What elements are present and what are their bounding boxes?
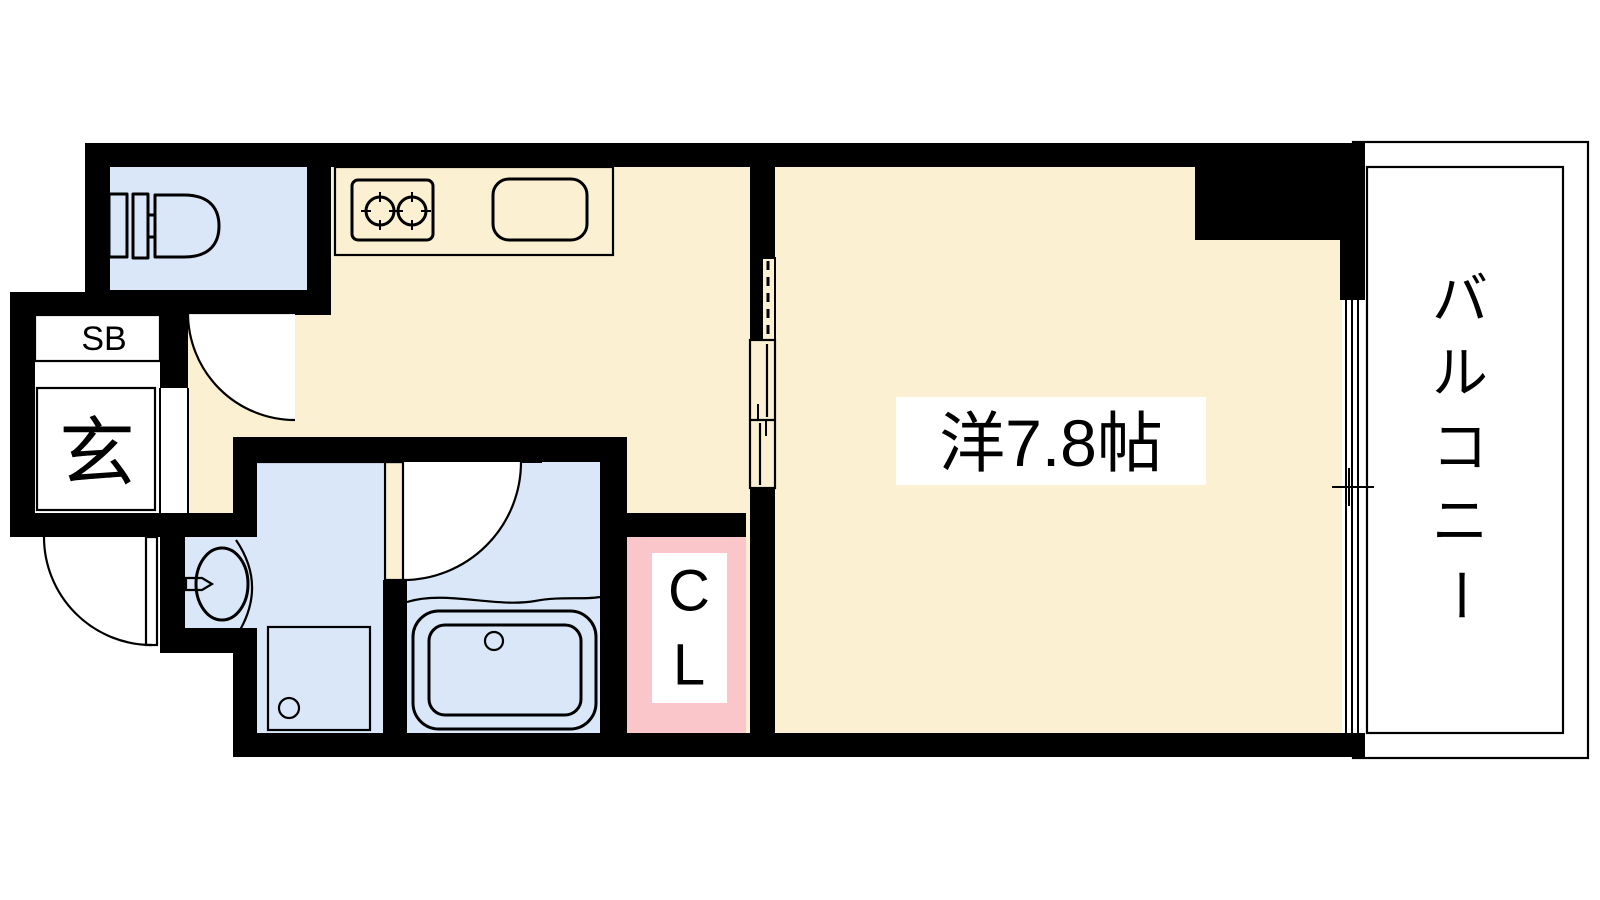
- closet-char-l: L: [673, 633, 705, 698]
- balcony-char-1: バ: [1432, 268, 1488, 331]
- shoe-box-label: SB: [81, 320, 126, 358]
- balcony-char-2: ル: [1432, 342, 1488, 405]
- wall-bath-divider: [383, 580, 407, 733]
- wall-right-upper: [1340, 167, 1365, 300]
- wall-partition-upper: [750, 165, 775, 258]
- wall-bottom: [233, 733, 1365, 757]
- balcony-label: バ ル コ ニ ー: [1429, 268, 1492, 624]
- wall-partition-lower: [750, 488, 775, 757]
- wall-closet-top: [627, 513, 746, 537]
- western-room-label: 洋7.8帖: [939, 406, 1163, 480]
- balcony-char-4: ニ: [1432, 490, 1488, 553]
- outside-area: [0, 537, 160, 900]
- entrance-label: 玄: [59, 412, 135, 497]
- wall-toilet-left: [85, 143, 110, 315]
- wall-outer-left: [10, 292, 35, 537]
- balcony-char-5: ー: [1429, 567, 1492, 623]
- wall-entrance-stub: [160, 315, 188, 388]
- floor-plan-svg: 洋7.8帖 バ ル コ ニ ー C L SB 玄: [0, 0, 1600, 900]
- closet-char-c: C: [668, 559, 710, 624]
- wall-alcove-bottom: [160, 628, 257, 653]
- wall-entrance-bottom: [10, 513, 257, 537]
- toilet-room-floor: [110, 167, 307, 290]
- balcony-char-3: コ: [1432, 416, 1488, 479]
- outside-area-2: [160, 653, 233, 900]
- wall-partition-half: [750, 258, 762, 340]
- floor-plan-page: 洋7.8帖 バ ル コ ニ ー C L SB 玄: [0, 0, 1600, 900]
- wall-top: [85, 143, 1365, 167]
- wall-closet-left: [600, 437, 627, 733]
- wall-top-right-notch: [1195, 167, 1340, 240]
